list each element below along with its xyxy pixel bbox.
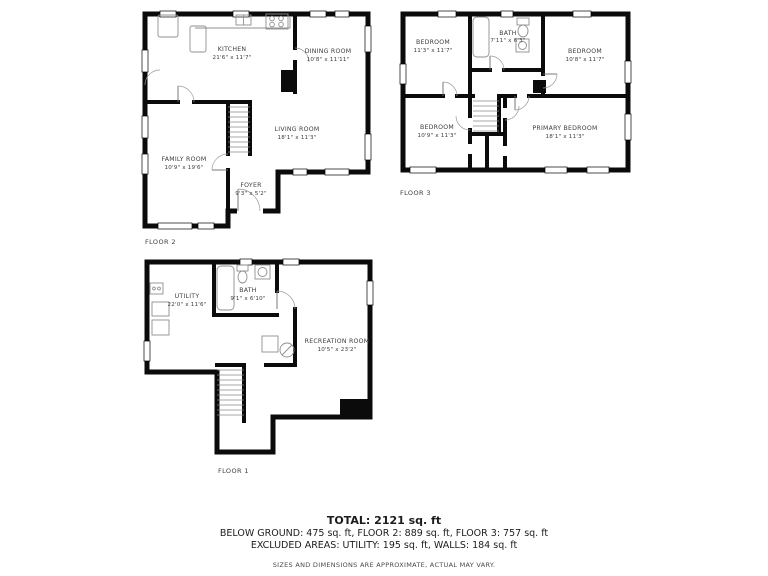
utility-appliances — [150, 283, 169, 335]
table-icon — [262, 336, 278, 352]
room-dims-kitchen: 21'6" x 11'7" — [212, 55, 251, 61]
floor2-caption: FLOOR 2 — [145, 238, 176, 246]
fridge-icon — [158, 15, 178, 37]
stairs-icon — [228, 107, 250, 152]
recreation-furniture — [262, 336, 294, 357]
room-label-bedroom-tl: BEDROOM — [416, 39, 450, 46]
floor3-caption: FLOOR 3 — [400, 189, 431, 197]
room-label-foyer: FOYER — [240, 182, 262, 189]
stairs-icon — [473, 101, 499, 131]
washer-icon — [150, 283, 163, 294]
room-dims-bath: 7'11" x 6'3" — [490, 38, 526, 44]
room-dims-utility: 22'0" x 11'6" — [167, 302, 206, 308]
room-dims-bedroom-tl: 11'3" x 11'7" — [413, 48, 452, 54]
chimney — [281, 70, 295, 92]
room-dims-foyer: 9'3" x 5'2" — [235, 191, 267, 197]
floor3-plan: BEDROOM 11'3" x 11'7" BATH 7'11" x 6'3" … — [395, 6, 640, 184]
total-area: TOTAL: 2121 sq. ft — [0, 514, 768, 527]
room-dims-bath1: 9'1" x 6'10" — [230, 296, 266, 302]
disclaimer-text: SIZES AND DIMENSIONS ARE APPROXIMATE, AC… — [0, 561, 768, 569]
bathtub-icon — [473, 17, 489, 57]
toilet-icon — [237, 265, 248, 283]
bathtub-icon — [217, 266, 234, 310]
room-dims-family: 10'9" x 19'6" — [164, 165, 203, 171]
room-dims-recreation: 10'5" x 23'2" — [317, 347, 356, 353]
room-dims-bedroom-bl: 10'9" x 11'3" — [417, 133, 456, 139]
bath-fixtures — [473, 17, 529, 57]
room-dims-living: 18'1" x 11'3" — [277, 135, 316, 141]
summary-block: TOTAL: 2121 sq. ft BELOW GROUND: 475 sq.… — [0, 514, 768, 569]
room-label-bedroom-bl: BEDROOM — [420, 124, 454, 131]
room-dims-primary: 18'1" x 11'3" — [545, 134, 584, 140]
toilet-icon — [517, 18, 529, 37]
floor-areas: BELOW GROUND: 475 sq. ft, FLOOR 2: 889 s… — [0, 528, 768, 539]
room-label-recreation: RECREATION ROOM — [305, 338, 370, 345]
room-dims-bedroom-tr: 10'8" x 11'7" — [565, 57, 604, 63]
floor1-walls — [147, 262, 370, 452]
floor1-plan: UTILITY 22'0" x 11'6" BATH 9'1" x 6'10" … — [140, 253, 380, 465]
room-label-family: FAMILY ROOM — [162, 156, 207, 163]
floorplan-page: KITCHEN 21'6" x 11'7" DINING ROOM 10'8" … — [0, 0, 768, 576]
room-label-kitchen: KITCHEN — [218, 46, 247, 53]
room-label-dining: DINING ROOM — [305, 48, 352, 55]
appliance-icon — [152, 302, 169, 316]
chimney — [533, 80, 546, 93]
chimney — [340, 399, 368, 415]
room-label-bath1: BATH — [239, 287, 257, 294]
room-label-utility: UTILITY — [175, 293, 200, 300]
appliance-icon — [152, 320, 169, 335]
room-label-bath: BATH — [499, 30, 517, 37]
room-label-bedroom-tr: BEDROOM — [568, 48, 602, 55]
room-label-primary: PRIMARY BEDROOM — [532, 125, 597, 132]
floor1-caption: FLOOR 1 — [218, 467, 249, 475]
room-dims-dining: 10'8" x 11'11" — [307, 57, 350, 63]
excluded-areas: EXCLUDED AREAS: UTILITY: 195 sq. ft, WAL… — [0, 540, 768, 551]
room-label-living: LIVING ROOM — [275, 126, 320, 133]
door-arcs — [277, 291, 295, 309]
sink-icon — [255, 265, 270, 279]
floor2-plan: KITCHEN 21'6" x 11'7" DINING ROOM 10'8" … — [140, 6, 380, 241]
pantry-icon — [190, 26, 206, 52]
stairs-icon — [217, 370, 244, 415]
